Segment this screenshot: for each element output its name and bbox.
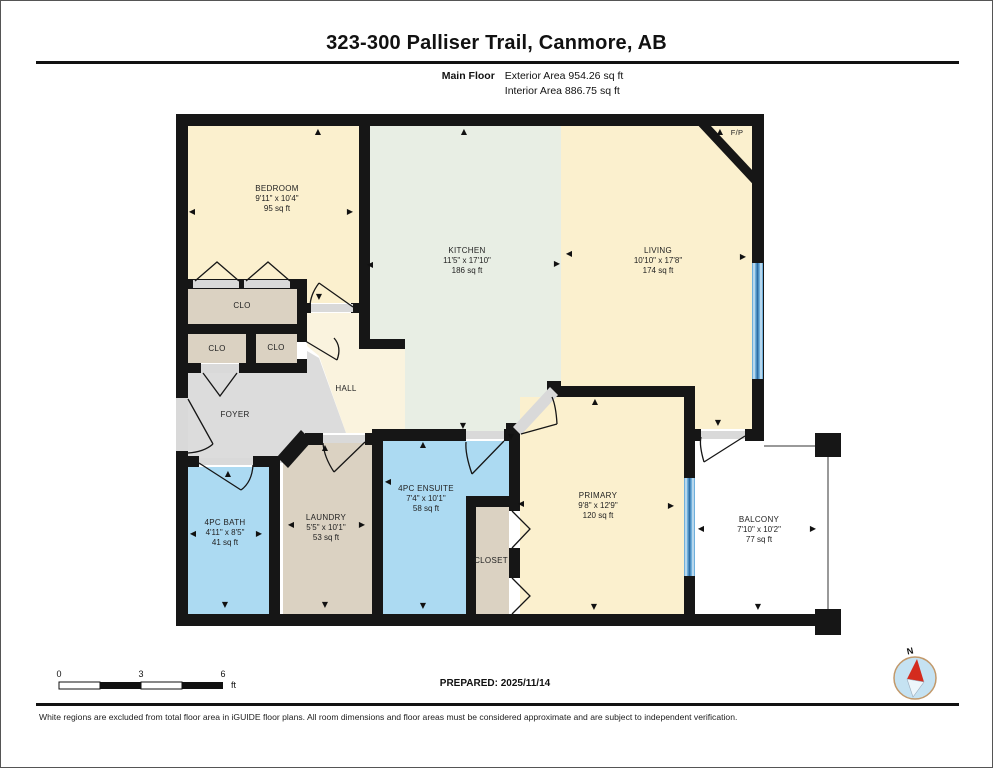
room-label-bath: 4PC BATH 4'11" x 8'5" 41 sq ft: [205, 518, 246, 548]
scale-bar: [59, 682, 223, 689]
arrow-icon: ▼: [322, 601, 328, 609]
room-label-clo-1: CLO: [233, 301, 250, 311]
arrow-icon: ▶: [668, 502, 674, 510]
arrow-icon: ◀: [288, 521, 294, 529]
room-label-balcony: BALCONY 7'10" x 10'2" 77 sq ft: [737, 515, 781, 545]
room-label-clo-3: CLO: [267, 343, 284, 353]
arrow-icon: ▶: [359, 521, 365, 529]
arrow-icon: ▲: [315, 128, 321, 136]
arrow-icon: ▼: [420, 602, 426, 610]
floor-plan-sheet: 323-300 Palliser Trail, Canmore, AB Main…: [0, 0, 993, 768]
arrow-icon: ◀: [385, 478, 391, 486]
arrow-icon: ▼: [222, 601, 228, 609]
room-label-living: LIVING 10'10" x 17'8" 174 sq ft: [634, 246, 682, 276]
arrow-icon: ◀: [190, 530, 196, 538]
arrow-icon: ▲: [420, 441, 426, 449]
arrow-icon: ▲: [322, 444, 328, 452]
room-label-clo-2: CLO: [208, 344, 225, 354]
arrow-icon: ▲: [461, 128, 467, 136]
fireplace-label: F/P: [731, 128, 744, 138]
room-label-foyer: FOYER: [220, 410, 249, 420]
scale-tick-0: 0: [56, 669, 61, 679]
arrow-icon: ▼: [460, 422, 466, 430]
scale-tick-6: 6: [220, 669, 225, 679]
room-label-primary: PRIMARY 9'8" x 12'9" 120 sq ft: [578, 491, 617, 521]
arrow-icon: ▶: [810, 525, 816, 533]
arrow-icon: ◀: [518, 500, 524, 508]
room-label-bedroom: BEDROOM 9'11" x 10'4" 95 sq ft: [255, 184, 298, 214]
arrow-icon: ◀: [189, 208, 195, 216]
floor-plan-drawing: [1, 1, 993, 768]
disclaimer-text: White regions are excluded from total fl…: [39, 712, 959, 722]
arrow-icon: ▼: [715, 419, 721, 427]
room-label-ensuite: 4PC ENSUITE 7'4" x 10'1" 58 sq ft: [398, 484, 454, 514]
scale-unit-label: ft: [231, 680, 236, 690]
arrow-icon: ▶: [554, 260, 560, 268]
arrow-icon: ▼: [591, 603, 597, 611]
room-label-hall: HALL: [335, 384, 356, 394]
arrow-icon: ▼: [508, 433, 514, 441]
arrow-icon: ◀: [698, 525, 704, 533]
room-label-kitchen: KITCHEN 11'5" x 17'10" 186 sq ft: [443, 246, 491, 276]
arrow-icon: ▼: [755, 603, 761, 611]
footer-divider: [36, 703, 959, 706]
scale-tick-3: 3: [138, 669, 143, 679]
arrow-icon: ▶: [256, 530, 262, 538]
arrow-icon: ▶: [740, 253, 746, 261]
room-label-laundry: LAUNDRY 5'5" x 10'1" 53 sq ft: [306, 513, 346, 543]
prepared-date: PREPARED: 2025/11/14: [440, 678, 550, 689]
arrow-icon: ▲: [717, 128, 723, 136]
compass-icon: [894, 657, 936, 699]
arrow-icon: ◀: [367, 261, 373, 269]
room-label-closet: CLOSET: [474, 556, 508, 566]
arrow-icon: ◀: [566, 250, 572, 258]
arrow-icon: ▼: [316, 293, 322, 301]
arrow-icon: ▶: [347, 208, 353, 216]
arrow-icon: ▲: [592, 398, 598, 406]
arrow-icon: ▲: [225, 470, 231, 478]
